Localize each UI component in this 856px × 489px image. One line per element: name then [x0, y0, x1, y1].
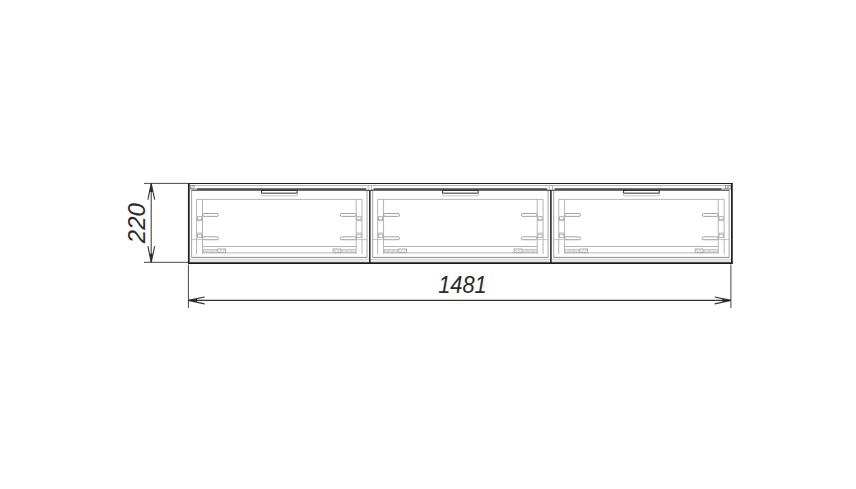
svg-text:220: 220 — [123, 203, 150, 245]
svg-text:1481: 1481 — [438, 271, 487, 298]
